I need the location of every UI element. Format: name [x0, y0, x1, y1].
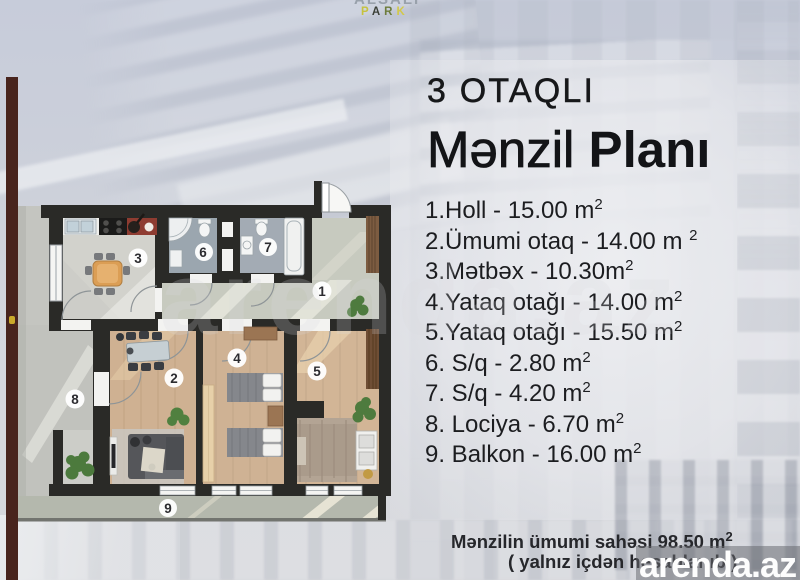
svg-text:9: 9: [164, 501, 172, 516]
svg-text:8: 8: [71, 392, 79, 407]
svg-text:5: 5: [313, 364, 321, 379]
svg-text:3: 3: [134, 251, 142, 266]
svg-text:2: 2: [170, 371, 178, 386]
